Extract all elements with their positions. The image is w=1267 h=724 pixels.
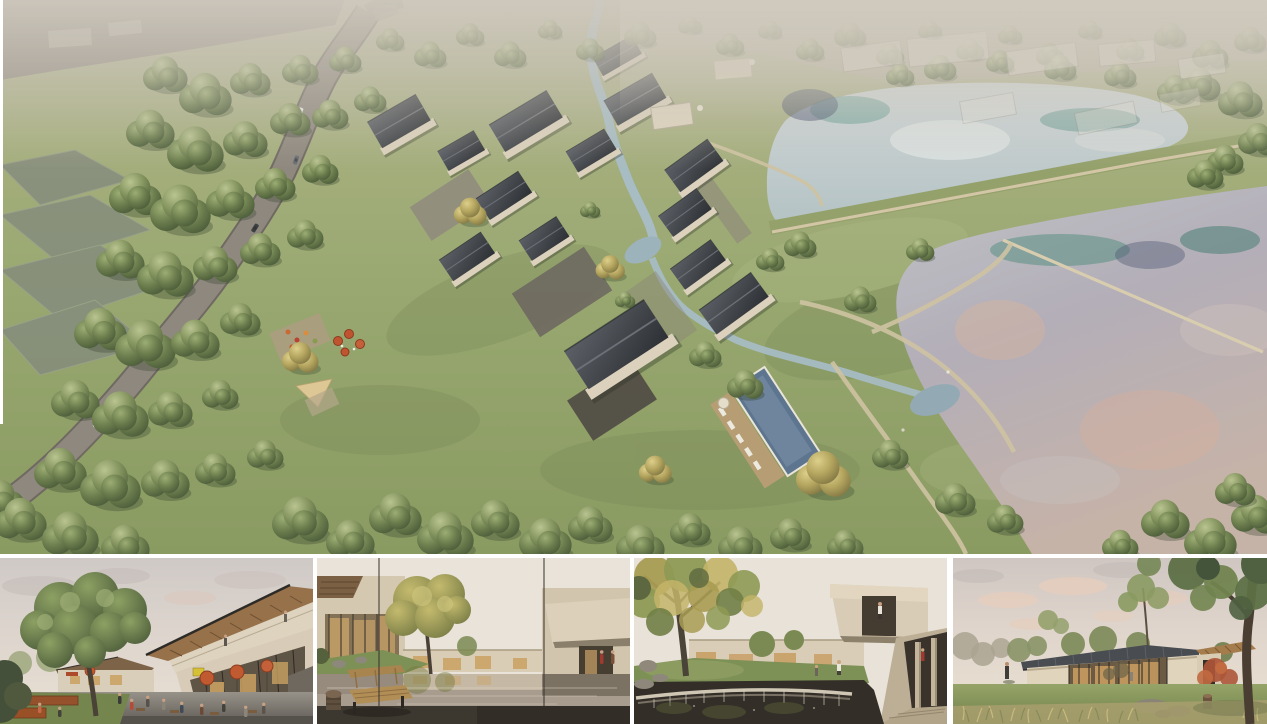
top-right-haze [620,0,1267,120]
plaza-cafe-svg [0,558,313,724]
hero-aerial-render [0,0,1267,554]
aerial-render-svg [0,0,1267,554]
right-building [542,588,630,676]
thumbnail-reflecting-courtyard [317,558,630,724]
reflecting-courtyard-svg [317,558,630,724]
boulder [639,660,657,672]
pond-courtyard-svg [634,558,947,724]
deck-shadow [477,706,630,724]
balcony-person [878,602,882,619]
thumbnail-row [0,558,1267,724]
render-board [0,0,1267,724]
corten-planter [26,696,78,705]
thumbnail-pond-courtyard [634,558,947,724]
left-margin-sliver [0,0,3,424]
lawn-pavilion-svg [953,558,1267,724]
interior-person [1130,672,1133,681]
thumbnail-plaza-cafe [0,558,313,724]
carved-stool [326,690,342,710]
thumbnail-lawn-pavilion [953,558,1267,724]
